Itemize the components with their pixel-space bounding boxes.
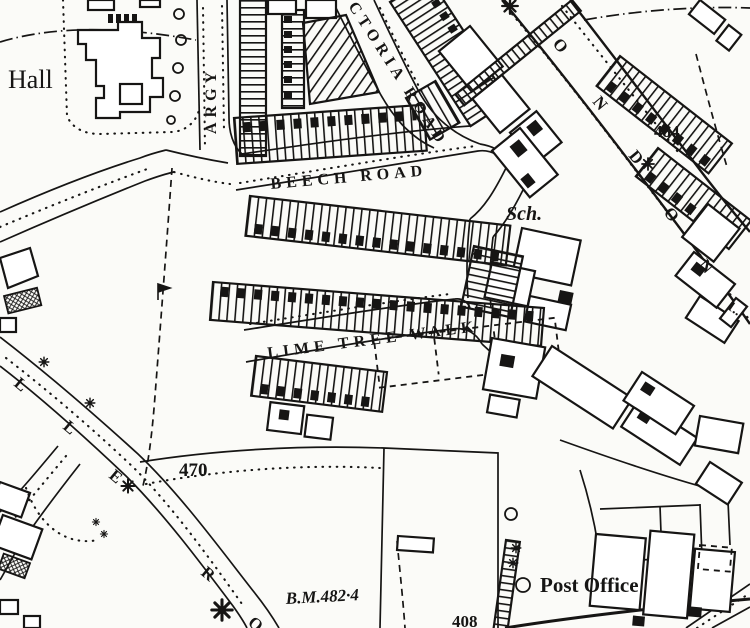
building-block [686, 0, 742, 51]
west-road-letter: E [105, 466, 126, 488]
tree-circles [167, 9, 186, 124]
spot-height-470: 470 [179, 460, 208, 481]
pump-circle-icon [505, 508, 517, 520]
building-block [0, 600, 18, 614]
beech-road-label: BEECH ROAD [270, 162, 428, 193]
boundary-mark-icon [85, 398, 95, 408]
terrace-strip [282, 10, 304, 108]
benchmark-label: B.M.482·4 [284, 585, 359, 608]
building-block [695, 416, 744, 453]
boundary-mark-icon [642, 158, 654, 170]
building-block [24, 616, 40, 628]
pump-circle-icon [516, 578, 530, 592]
building-block [0, 248, 38, 288]
boundary-mark-icon [212, 600, 232, 620]
building-block [140, 0, 160, 7]
flagstaff-icon [158, 284, 170, 300]
bottom-left-cluster [0, 481, 53, 612]
tree-mark-icon [508, 558, 518, 568]
building-block [268, 0, 296, 14]
west-road-letter: R [197, 563, 219, 586]
london-letter: O [549, 34, 572, 56]
boundary-mark-icon [121, 479, 134, 492]
boundary-mark-icon [100, 530, 107, 537]
boundary-mark-icon [92, 518, 99, 525]
argyle-street-label: ARGY [203, 67, 220, 134]
terrace-row-south-ltw [247, 356, 387, 446]
post-office-label: Post Office [540, 573, 639, 597]
building-block [397, 536, 434, 552]
west-road-letter: O [244, 613, 266, 628]
boundary-mark-icon [39, 357, 49, 367]
glasshouse [4, 288, 41, 314]
hall-building [78, 14, 163, 118]
spot-height-408: 408 [452, 612, 478, 628]
buildings [0, 0, 750, 628]
west-road-letters: L L E R O [10, 374, 266, 628]
west-road-letter: L [59, 417, 80, 439]
building-block [88, 0, 114, 10]
ink-mark-icon [502, 0, 518, 14]
building-block [306, 0, 336, 18]
school-label: Sch. [506, 203, 542, 225]
map-canvas: Hall ARGY CTORIA ROAD BEECH ROAD LIME TR… [0, 0, 750, 628]
terrace-row-a [245, 196, 510, 265]
building-block [696, 462, 742, 505]
building-block [0, 318, 16, 332]
hall-label: Hall [8, 65, 53, 94]
tree-mark-icon [511, 543, 521, 553]
os-map-svg: Hall ARGY CTORIA ROAD BEECH ROAD LIME TR… [0, 0, 750, 628]
spot-height-484: 484 [654, 122, 680, 141]
